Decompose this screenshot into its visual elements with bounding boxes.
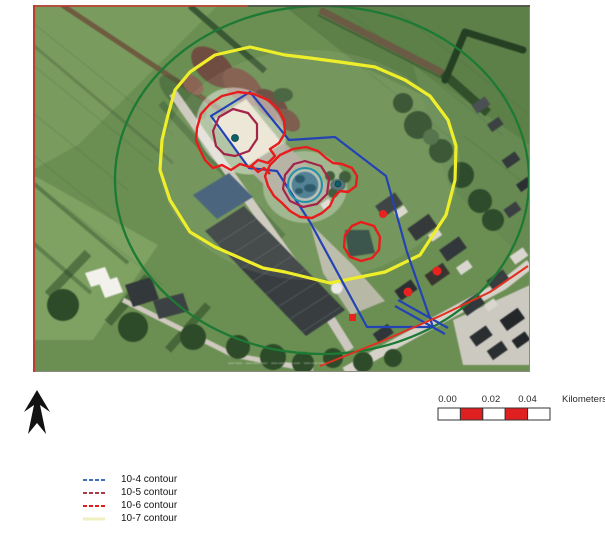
scale-unit-label: Kilometers xyxy=(562,394,605,405)
legend-swatch-10-5 xyxy=(83,489,105,497)
legend-item-10-6: 10-6 contour xyxy=(83,499,177,512)
legend-item-10-4: 10-4 contour xyxy=(83,473,177,486)
legend-swatch-10-7 xyxy=(83,515,105,523)
legend-swatch-10-4 xyxy=(83,476,105,484)
contour-inner-wash xyxy=(160,50,460,280)
aerial-map xyxy=(33,5,530,372)
imagery-watermark: —— ——— ———— ——— xyxy=(228,360,358,370)
map-region xyxy=(33,5,530,372)
scale-tick-2: 0.04 xyxy=(518,394,537,405)
legend-label-10-5: 10-5 contour xyxy=(121,486,177,499)
north-arrow-icon xyxy=(22,388,52,436)
scale-bar-segments xyxy=(438,408,550,420)
scale-tick-0: 0.00 xyxy=(438,394,457,405)
legend-item-10-7: 10-7 contour xyxy=(83,512,177,525)
legend-item-10-5: 10-5 contour xyxy=(83,486,177,499)
scale-bar: 0.00 0.02 0.04 Kilometers xyxy=(430,390,605,430)
legend-label-10-6: 10-6 contour xyxy=(121,499,177,512)
legend: 10-4 contour 10-5 contour 10-6 contour 1… xyxy=(83,473,177,525)
legend-label-10-4: 10-4 contour xyxy=(121,473,177,486)
legend-label-10-7: 10-7 contour xyxy=(121,512,177,525)
scanned-map-figure: —— ——— ———— ——— 0.00 0.02 0.04 Kilometer… xyxy=(0,0,605,537)
legend-swatch-10-6 xyxy=(83,502,105,510)
scale-tick-1: 0.02 xyxy=(482,394,501,405)
